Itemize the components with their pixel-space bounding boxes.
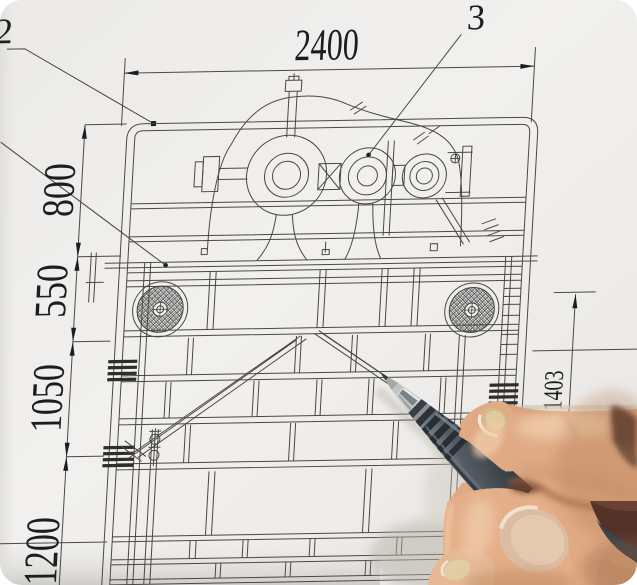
svg-text:1200: 1200 xyxy=(14,517,71,585)
svg-text:550: 550 xyxy=(25,264,78,319)
svg-text:1050: 1050 xyxy=(20,364,74,433)
svg-text:3: 3 xyxy=(466,0,486,37)
svg-text:800: 800 xyxy=(32,163,85,218)
svg-text:2: 2 xyxy=(0,11,14,51)
svg-text:2400: 2400 xyxy=(293,19,360,70)
